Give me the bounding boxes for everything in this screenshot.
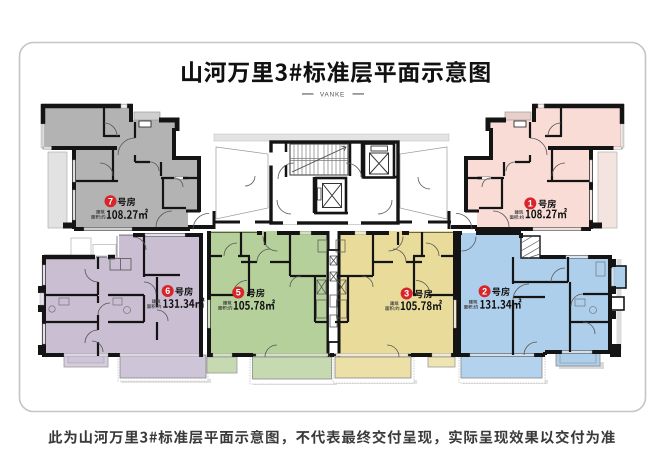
svg-text:2: 2 [482,286,487,296]
svg-text:VANKE: VANKE [320,92,345,99]
svg-text:7: 7 [108,197,113,207]
svg-text:1: 1 [528,199,533,209]
svg-text:5: 5 [236,288,241,298]
svg-text:3: 3 [404,289,409,299]
svg-text:6: 6 [165,286,170,296]
